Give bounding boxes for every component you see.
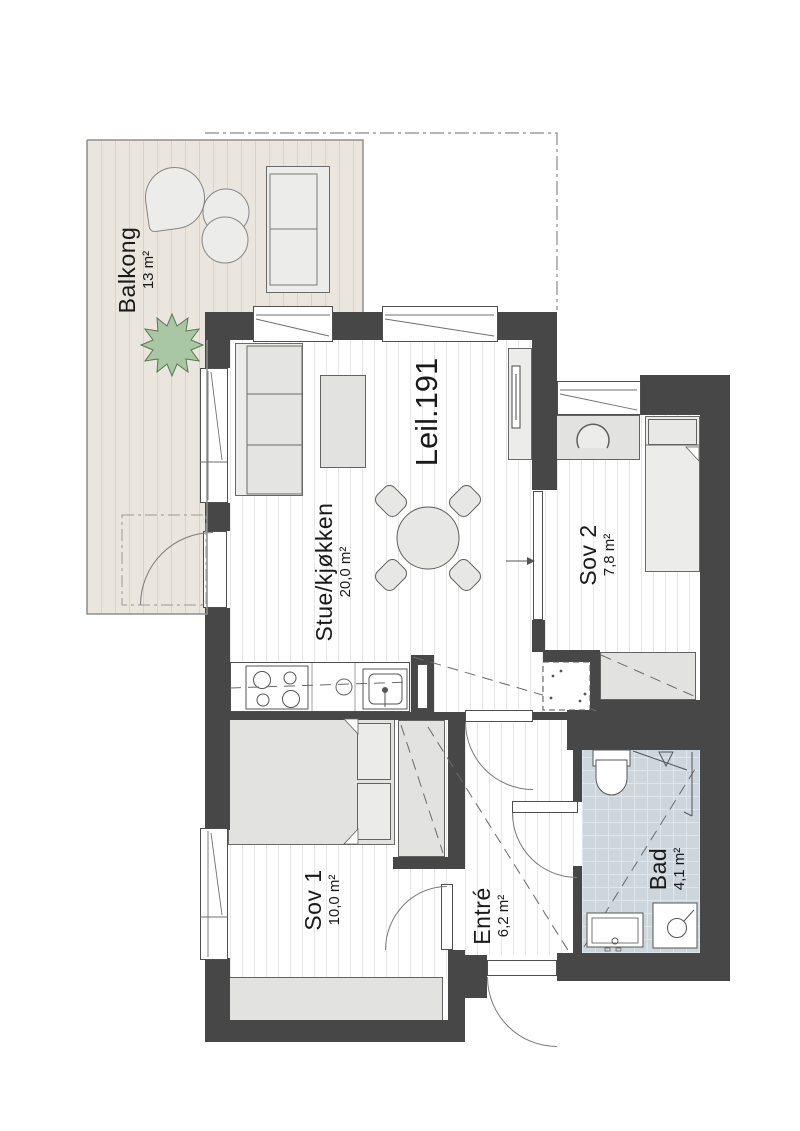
sov1-wardrobe (398, 720, 445, 857)
room-area: 7,8 m² (601, 534, 618, 577)
room-area: 4,1 m² (671, 848, 688, 891)
window (253, 306, 333, 342)
wall (573, 750, 582, 802)
wall (205, 1020, 465, 1042)
room-name: Balkong (115, 227, 140, 314)
room-area: 6,2 m² (495, 895, 512, 938)
window (200, 368, 228, 503)
door-pocket (417, 664, 428, 709)
bathroom-door-leaf (512, 801, 578, 813)
room-name: Stue/kjøkken (312, 503, 337, 642)
room-name: Bad (646, 848, 671, 890)
sov1-pillow-1 (357, 723, 391, 780)
floor-plan: Balkong 13 m² Stue/kjøkken 20,0 m² Leil.… (0, 0, 800, 1131)
room-label-sov1: Sov 1 10,0 m² (301, 869, 343, 930)
entre-inner-door-leaf (465, 710, 533, 722)
wall (465, 955, 487, 998)
wall (532, 340, 557, 490)
wall (393, 857, 465, 869)
room-label-stue: Stue/kjøkken 20,0 m² (312, 503, 354, 642)
desk (550, 415, 640, 460)
wall (448, 950, 465, 1042)
room-label-balkong: Balkong 13 m² (115, 227, 157, 314)
wall (205, 958, 230, 1022)
entrance-door-leaf (487, 960, 557, 976)
room-label-entre: Entré 6,2 m² (470, 887, 512, 944)
room-label-bad: Bad 4,1 m² (646, 848, 688, 891)
room-area: 10,0 m² (326, 875, 343, 926)
wall (573, 866, 582, 953)
window (200, 828, 228, 960)
room-area: 20,0 m² (337, 547, 354, 598)
sliding-door-panel (533, 491, 543, 620)
tv-bench (508, 348, 532, 460)
wall (543, 650, 600, 662)
room-label-sov2: Sov 2 7,8 m² (576, 524, 618, 585)
wall (532, 620, 545, 652)
room-area: 13 m² (140, 251, 157, 289)
window (382, 306, 498, 342)
sov1-closet-strip (228, 977, 443, 1021)
wall (205, 503, 230, 531)
sov2-wardrobe (600, 652, 696, 700)
wall (567, 700, 700, 750)
sofa (235, 343, 303, 496)
wall (557, 953, 730, 981)
balcony-sofa (266, 166, 330, 293)
sov2-bed-pillow (648, 419, 697, 445)
room-name: Sov 1 (301, 869, 326, 930)
wall (448, 718, 465, 857)
wall (700, 375, 730, 981)
window (557, 381, 641, 415)
kitchen-counter (230, 662, 410, 712)
entrance-door-swing-arc (487, 977, 557, 1047)
apartment-number-label: Leil.191 (409, 358, 445, 467)
coffee-table (320, 375, 366, 468)
sov1-pillow-2 (357, 783, 391, 840)
wall (205, 340, 230, 368)
room-name: Entré (470, 887, 495, 944)
room-name: Sov 2 (576, 524, 601, 585)
